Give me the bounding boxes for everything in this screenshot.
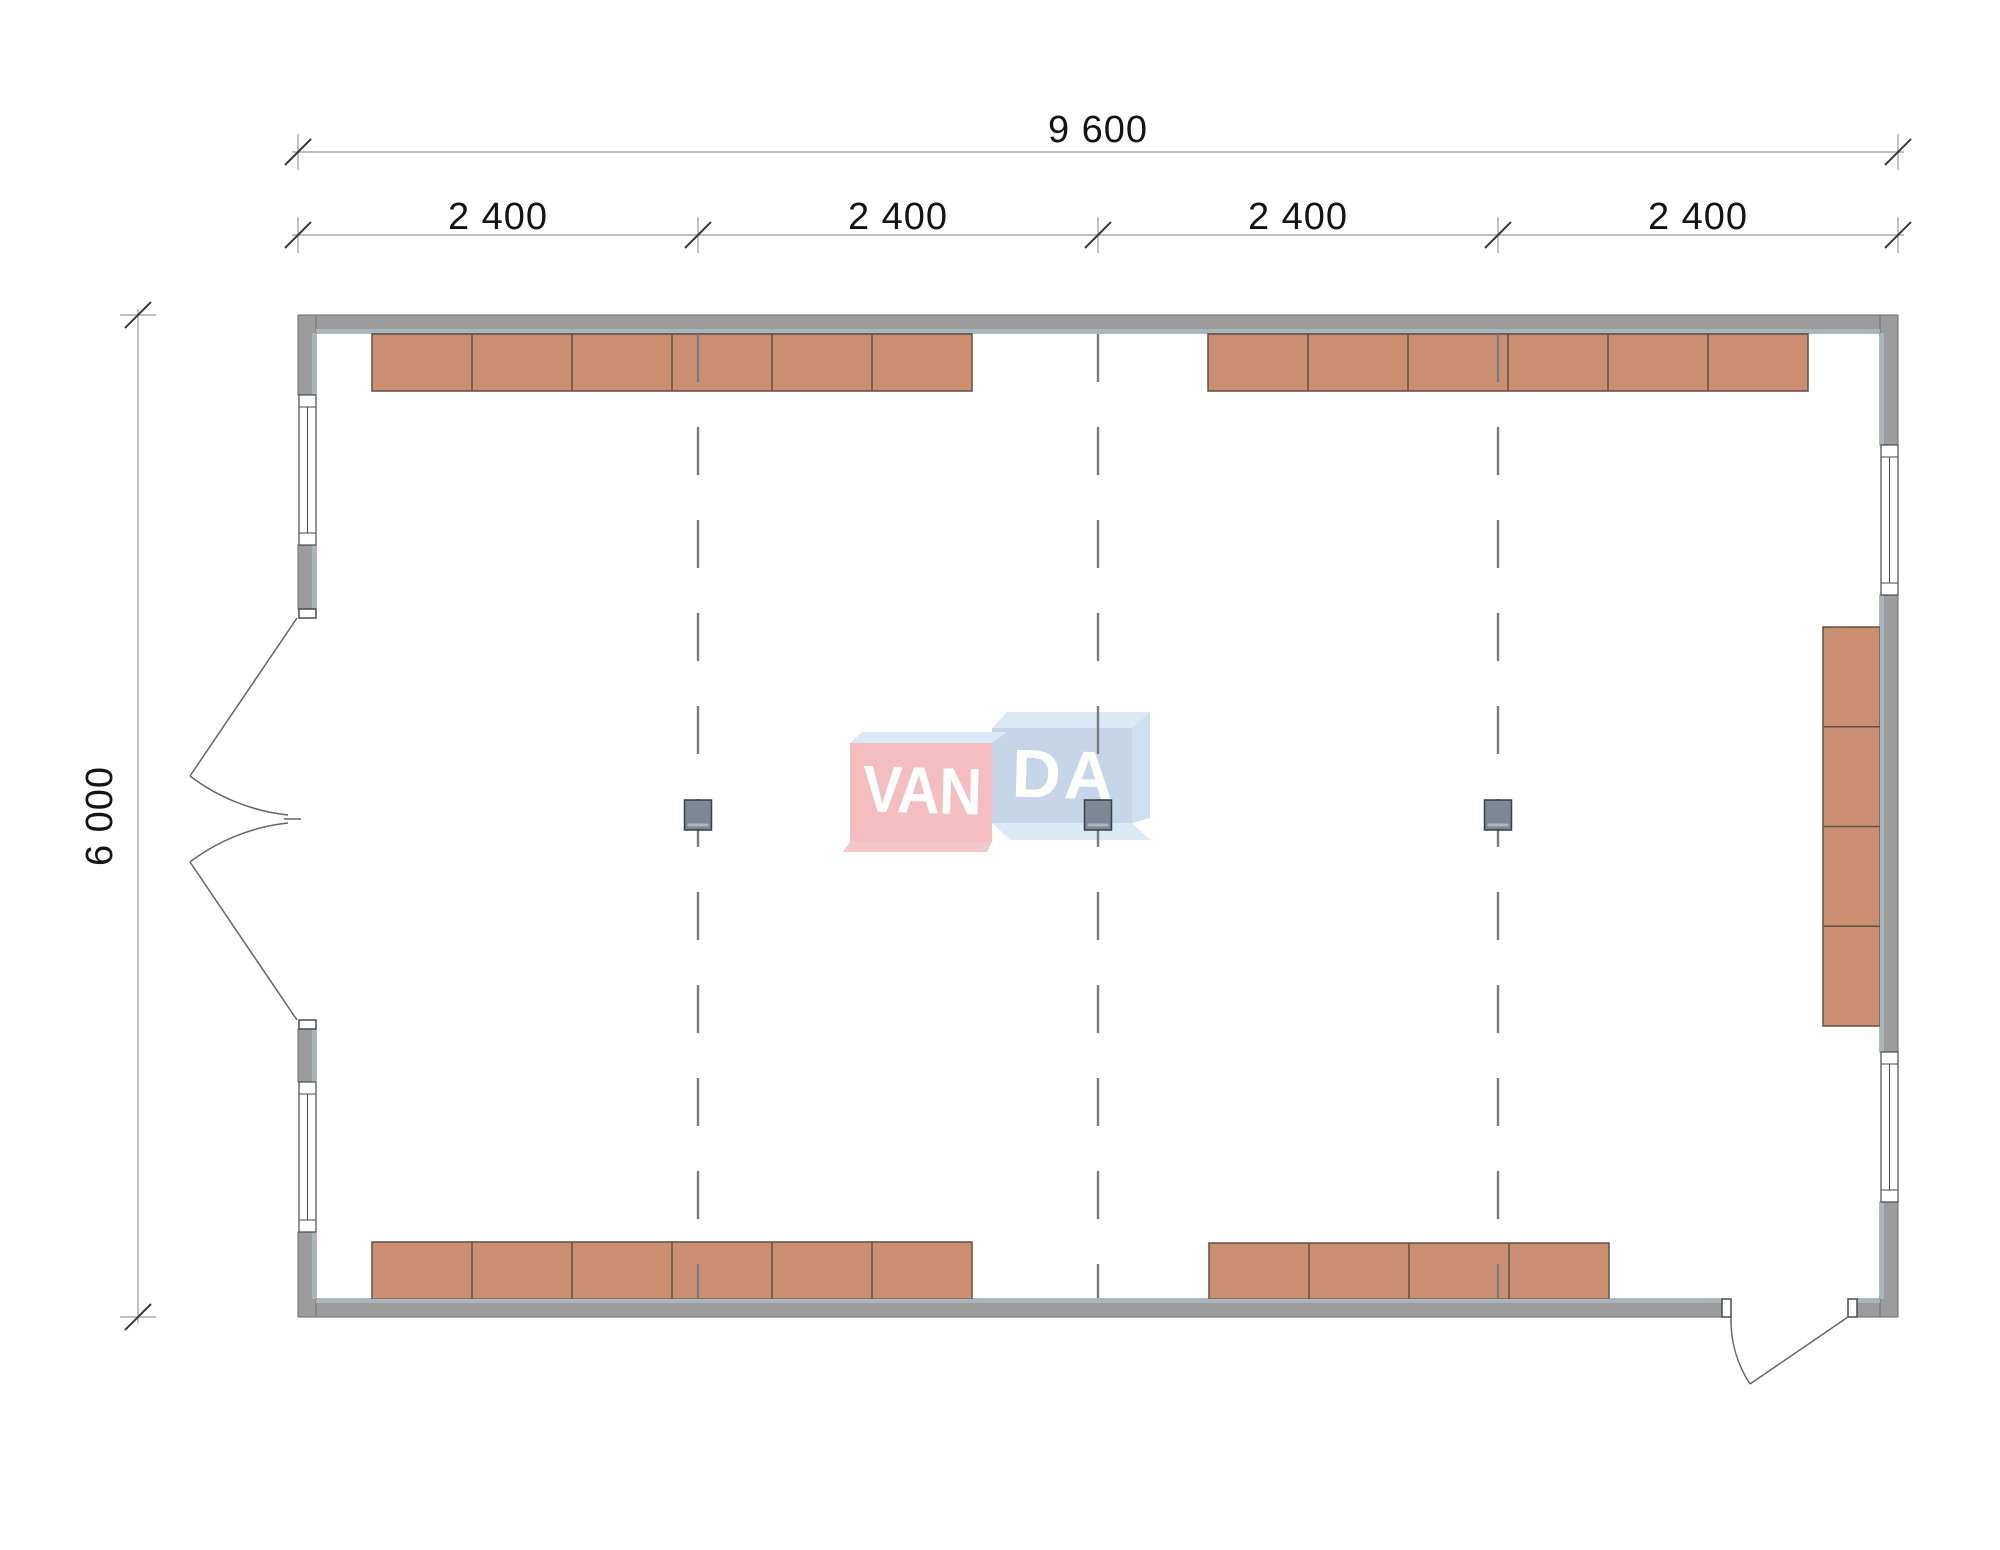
top-wall-left-cabinets [372, 334, 972, 391]
door-swing-arc [1731, 1317, 1750, 1384]
door-swing-arc [190, 823, 288, 862]
dimension-label-bay-2: 2 400 [798, 198, 998, 236]
lining [1880, 333, 1884, 445]
furniture-layer [372, 334, 1880, 1299]
door-leaf [1750, 1317, 1848, 1384]
columns-layer [685, 800, 1512, 830]
lining [312, 1029, 316, 1082]
dimension-label-total-height: 6 000 [81, 716, 119, 916]
dimension-lines-layer [120, 134, 1911, 1330]
dimension-label-bay-4: 2 400 [1598, 198, 1798, 236]
left-wall-window-bottom [299, 1082, 316, 1232]
left-double-entrance-door [190, 609, 316, 1029]
bottom-right-single-door [1722, 1299, 1857, 1384]
lining [1857, 1299, 1880, 1303]
right-wall-window-bottom [1881, 1052, 1898, 1202]
door-leaf [190, 862, 297, 1020]
column [685, 800, 712, 830]
lining [312, 1232, 316, 1299]
left-wall-window-top [299, 395, 316, 545]
vertical-dimension [120, 302, 156, 1330]
lining [1880, 595, 1884, 1052]
bottom-wall-right-cabinets [1209, 1243, 1609, 1299]
door-swing-arc [190, 776, 288, 815]
door-leaf [190, 618, 297, 776]
lining [312, 545, 316, 609]
bottom-wall-left-cabinets [372, 1242, 972, 1299]
dimension-label-bay-3: 2 400 [1198, 198, 1398, 236]
right-wall-window-top [1881, 445, 1898, 595]
lining [316, 329, 1880, 333]
door-jamb [1848, 1299, 1857, 1317]
column [1085, 800, 1112, 830]
dimension-label-bay-1: 2 400 [398, 198, 598, 236]
right-wall-cabinets [1823, 627, 1880, 1026]
column [1485, 800, 1512, 830]
top-wall-right-cabinets [1208, 334, 1808, 391]
door-jamb [299, 1020, 316, 1029]
floor-plan-canvas: VAN DA [0, 0, 2000, 1550]
lining [1880, 1202, 1884, 1299]
lining [312, 333, 316, 395]
dimension-label-total-width: 9 600 [998, 111, 1198, 149]
lining [316, 1299, 1722, 1303]
door-jamb [1722, 1299, 1731, 1317]
door-jamb [299, 609, 316, 618]
